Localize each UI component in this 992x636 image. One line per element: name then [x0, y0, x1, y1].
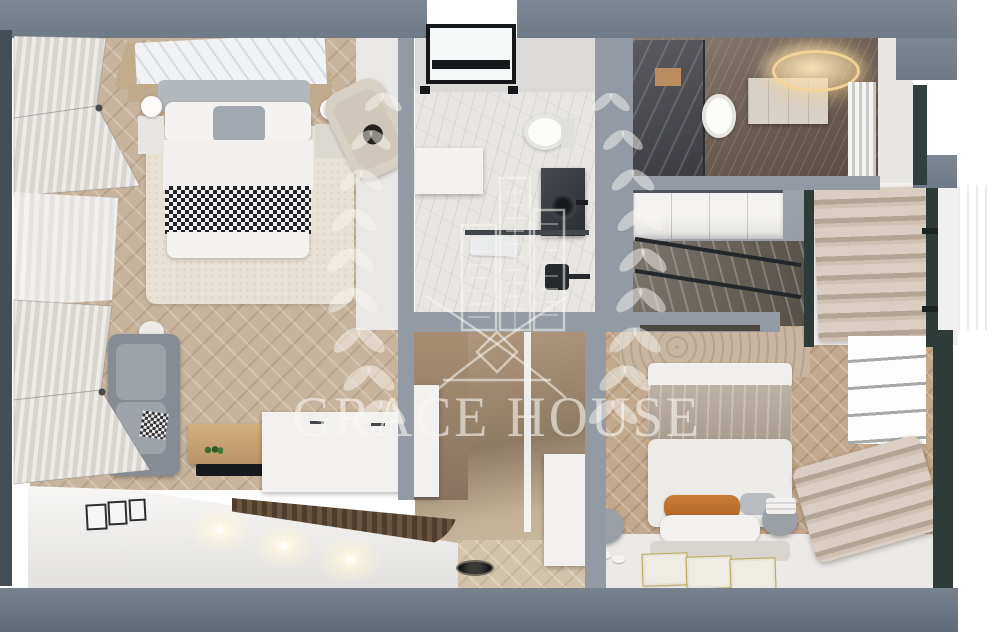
- bed1-checkered-blanket: [165, 186, 311, 234]
- toilet-icon: [524, 114, 566, 150]
- folded-towels: [766, 498, 796, 514]
- slipper: [612, 555, 625, 563]
- bath2-shower-glass: [633, 40, 705, 186]
- skylight-bracket: [508, 86, 518, 94]
- watermark-brand-text: GRACE HOUSE: [292, 384, 702, 449]
- wall-top-left: [0, 0, 427, 38]
- wall-dark-lip: [640, 325, 760, 331]
- wall-hall-bedroom2: [585, 330, 606, 588]
- wall-step: [896, 38, 957, 80]
- bath1-half-wall: [415, 148, 483, 194]
- sheer-curtain: [848, 336, 926, 444]
- bed2-white-pillow: [660, 515, 760, 543]
- floor-drain-tray: [456, 560, 494, 576]
- corridor-wall-photo: [107, 501, 127, 526]
- floor-art-frame: [642, 553, 687, 586]
- corridor-lamp-bulb: [216, 526, 224, 534]
- sink-icon: [549, 192, 577, 220]
- checkered-pillow: [139, 410, 168, 439]
- wall-left-frame: [0, 30, 12, 586]
- wall-right-teal: [933, 330, 953, 588]
- wall-top-right: [517, 0, 957, 38]
- bath2-shelf-box: [655, 68, 681, 86]
- bed1-duvet: [163, 140, 313, 190]
- quilted-roman-curtain: [813, 186, 930, 342]
- towel-radiator: [848, 82, 876, 180]
- bedroom2-window-group: [848, 328, 936, 546]
- shower-head-icon: [545, 264, 569, 290]
- tv-console: [188, 424, 270, 464]
- toilet-tank: [561, 118, 575, 148]
- shower-arm: [568, 274, 590, 279]
- wall-bottom: [0, 588, 958, 632]
- bedside-lamp-icon: [141, 96, 162, 117]
- skylight-window: [426, 24, 516, 84]
- open-wardrobe: [633, 193, 783, 239]
- faucet-icon: [576, 200, 588, 205]
- frame-bracket: [922, 306, 938, 312]
- hall-dresser: [544, 454, 586, 566]
- corridor-lamp-bulb: [346, 556, 354, 564]
- ring-light-icon: [772, 50, 860, 92]
- window-sill-white: [938, 183, 958, 345]
- floor-art-frame: [730, 558, 775, 591]
- toilet-icon: [702, 94, 736, 138]
- skylight-bracket: [420, 86, 430, 94]
- wall-teal-frame-top: [913, 85, 927, 185]
- lounge-chair-backrest: [116, 344, 166, 400]
- corridor-wall-photo: [128, 499, 146, 522]
- corridor-wall-photo: [85, 503, 107, 530]
- bed1-accent-pillow: [213, 106, 265, 142]
- wall-bath2-landing: [627, 176, 880, 190]
- floor-art-frame: [686, 556, 731, 589]
- window-frame-post: [804, 181, 814, 347]
- shower-glass-rail: [465, 230, 589, 235]
- window-frame-post: [926, 181, 938, 347]
- floor-plan-render: GRACE HOUSE: [0, 0, 992, 636]
- skylight-bar: [432, 60, 510, 69]
- plant-decor-icon: [203, 444, 223, 456]
- frame-bracket: [922, 228, 938, 234]
- hanging-towel: [470, 235, 519, 257]
- nightstand-left: [138, 116, 164, 154]
- bed1-fold: [167, 232, 309, 258]
- corridor-lamp-bulb: [280, 542, 288, 550]
- balcony-stripes: [958, 185, 992, 330]
- tv-screen: [196, 464, 266, 476]
- bed1: [163, 98, 313, 260]
